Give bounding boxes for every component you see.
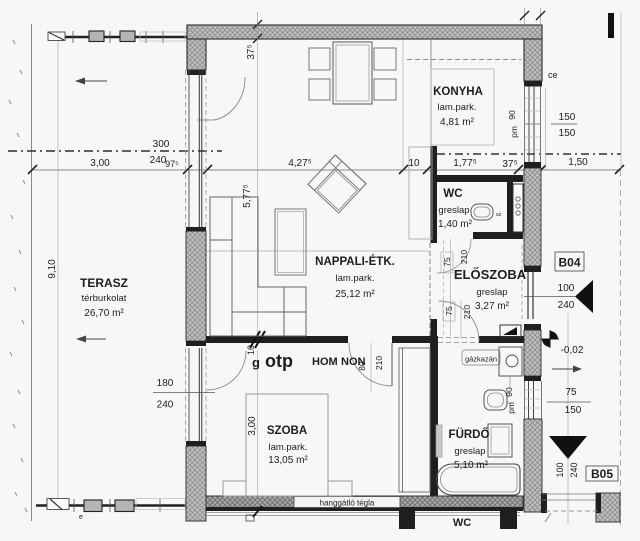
svg-text:10: 10	[408, 158, 420, 169]
svg-text:greslap: greslap	[476, 287, 507, 298]
svg-text:pm: pm	[509, 126, 519, 138]
svg-text:1,40 m²: 1,40 m²	[438, 219, 473, 230]
svg-text:NAPPALI-ÉTK.: NAPPALI-ÉTK.	[315, 255, 395, 268]
svg-text:greslap: greslap	[454, 446, 485, 457]
svg-text:KONYHA: KONYHA	[433, 86, 483, 98]
svg-text:3,00: 3,00	[90, 158, 110, 169]
svg-text:75: 75	[442, 257, 452, 267]
svg-text:240: 240	[157, 400, 174, 411]
svg-text:150: 150	[559, 112, 576, 123]
svg-text:13,05 m²: 13,05 m²	[268, 455, 308, 466]
svg-text:1,77⁵: 1,77⁵	[453, 158, 477, 169]
svg-text:5,77⁵: 5,77⁵	[242, 184, 253, 208]
svg-text:100: 100	[555, 462, 565, 477]
svg-text:240: 240	[569, 462, 579, 477]
svg-text:HOM: HOM	[312, 356, 338, 368]
svg-text:75: 75	[444, 306, 454, 316]
svg-text:lam.park.: lam.park.	[335, 273, 374, 284]
svg-text:3,27 m²: 3,27 m²	[475, 301, 510, 312]
svg-text:26,70 m²: 26,70 m²	[84, 308, 124, 319]
svg-text:g: g	[252, 355, 260, 370]
svg-text:WC: WC	[453, 517, 471, 529]
svg-text:4,27⁵: 4,27⁵	[288, 158, 312, 169]
svg-text:150: 150	[559, 128, 576, 139]
svg-text:lam.park.: lam.park.	[268, 442, 307, 453]
svg-text:97⁵: 97⁵	[165, 159, 179, 169]
svg-text:90: 90	[507, 110, 517, 120]
svg-text:180: 180	[157, 378, 174, 389]
svg-text:90: 90	[504, 387, 514, 397]
svg-text:37⁵: 37⁵	[246, 44, 257, 59]
svg-text:B04: B04	[558, 256, 580, 270]
svg-text:WC: WC	[443, 188, 462, 200]
svg-text:e: e	[79, 514, 83, 521]
svg-text:210: 210	[462, 305, 472, 319]
svg-text:9,10: 9,10	[47, 259, 58, 279]
svg-text:300: 300	[153, 139, 170, 150]
svg-text:150: 150	[565, 405, 582, 416]
svg-text:hanggátló tégla: hanggátló tégla	[320, 499, 375, 508]
svg-text:pm: pm	[506, 402, 516, 414]
svg-text:greslap: greslap	[438, 205, 469, 216]
svg-text:gázkazán: gázkazán	[465, 355, 497, 364]
svg-text:25,12 m²: 25,12 m²	[335, 289, 375, 300]
svg-text:4,81 m²: 4,81 m²	[440, 117, 475, 128]
svg-text:3,00: 3,00	[247, 416, 258, 436]
svg-text:210: 210	[459, 250, 469, 264]
svg-text:100: 100	[558, 283, 575, 294]
svg-text:ce: ce	[548, 70, 558, 80]
svg-text:80: 80	[357, 361, 367, 371]
svg-text:B05: B05	[591, 467, 613, 481]
svg-text:210: 210	[374, 356, 384, 370]
svg-text:37⁵: 37⁵	[502, 159, 517, 170]
svg-text:5,10 m²: 5,10 m²	[454, 460, 489, 471]
svg-text:75: 75	[565, 387, 577, 398]
svg-text:240: 240	[558, 300, 575, 311]
svg-text:-0,02: -0,02	[561, 345, 584, 356]
svg-text:FÜRDŐ: FÜRDŐ	[449, 428, 490, 441]
svg-text:TERASZ: TERASZ	[80, 276, 128, 290]
svg-text:otp: otp	[265, 351, 293, 371]
svg-text:ELŐSZOBA: ELŐSZOBA	[454, 267, 527, 282]
svg-text:SZOBA: SZOBA	[267, 425, 307, 437]
svg-text:10: 10	[246, 345, 256, 355]
svg-text:sz: sz	[496, 212, 502, 218]
svg-text:1,50: 1,50	[568, 157, 588, 168]
svg-text:lam.park.: lam.park.	[437, 102, 476, 113]
svg-text:térburkolat: térburkolat	[82, 293, 127, 304]
